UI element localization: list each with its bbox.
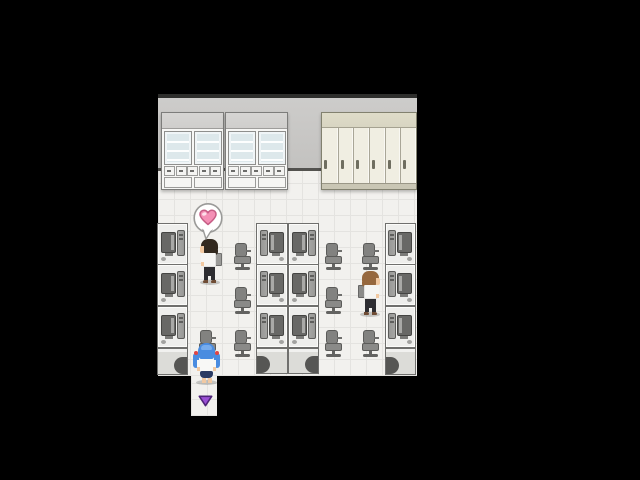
cabinet-glass-door <box>228 131 256 165</box>
chair-base <box>235 267 250 270</box>
desk-front-panel <box>385 348 416 375</box>
chair-seat <box>234 256 251 264</box>
locker-handle <box>372 160 375 169</box>
tower-slot <box>390 275 394 277</box>
desk-monitor <box>269 232 284 253</box>
monitor-screen <box>302 235 305 250</box>
chair-armrest <box>374 250 379 252</box>
tower-slot <box>179 279 183 281</box>
computer-desk <box>288 223 319 265</box>
pants <box>204 267 215 276</box>
cabinet-drawer <box>228 166 239 176</box>
monitor-stand <box>400 294 408 297</box>
desk-pc-tower <box>308 230 316 256</box>
shoe <box>203 280 208 283</box>
tower-slot <box>390 234 394 236</box>
office-chair <box>362 330 380 358</box>
chair-armrest <box>337 337 342 339</box>
cabinet-drawer <box>199 166 210 176</box>
drawer-handle <box>277 170 281 172</box>
hand <box>201 262 204 266</box>
chair-base <box>326 354 341 357</box>
monitor-stand <box>296 253 304 256</box>
desk-monitor <box>397 232 412 253</box>
cabinet-top-band <box>226 113 287 129</box>
game-screen <box>0 0 640 480</box>
monitor-stand <box>165 253 173 256</box>
office-chair <box>234 243 252 271</box>
cabinet-drawer <box>240 166 251 176</box>
desk-equipment <box>386 307 415 347</box>
chair-seat <box>234 300 251 308</box>
tower-slot <box>310 279 314 281</box>
desk-pc-tower <box>260 271 268 297</box>
chair-armrest <box>246 294 251 296</box>
locker-door <box>353 128 369 183</box>
leg <box>208 378 212 383</box>
cabinet-drawer <box>176 166 187 176</box>
tower-slot <box>179 321 183 323</box>
tower-slot <box>179 234 183 236</box>
hair-sheen <box>201 345 212 350</box>
monitor-screen <box>399 318 402 333</box>
monitor-stand <box>296 336 304 339</box>
hand <box>197 367 200 371</box>
locker-handle <box>403 160 406 169</box>
locker-top-band <box>322 113 416 128</box>
locker-cabinet <box>321 112 417 190</box>
monitor-stand <box>272 294 280 297</box>
shirt <box>199 359 214 371</box>
office-chair <box>325 330 343 358</box>
chair-base <box>326 311 341 314</box>
npc-brown-hair[interactable] <box>358 271 382 317</box>
drawer-handle <box>231 170 235 172</box>
locker-base <box>322 183 416 189</box>
drawer-handle <box>167 170 171 172</box>
desk-pc-tower <box>177 271 185 297</box>
desk-equipment <box>257 224 287 264</box>
monitor-screen <box>399 276 402 291</box>
chair-armrest <box>337 294 342 296</box>
desk-equipment <box>158 224 187 264</box>
leg <box>202 378 206 383</box>
tower-slot <box>390 238 394 240</box>
desk-equipment <box>158 265 187 305</box>
exit-arrow[interactable] <box>198 395 213 407</box>
drawer-handle <box>266 170 270 172</box>
monitor-screen <box>271 276 274 291</box>
shadow <box>360 312 380 317</box>
cabinet-door <box>228 177 256 188</box>
monitor-stand <box>400 253 408 256</box>
monitor-stand <box>272 336 280 339</box>
computer-desk <box>157 306 188 348</box>
desk-equipment <box>289 224 318 264</box>
desk-pc-tower <box>260 313 268 339</box>
cabinet-door <box>258 177 286 188</box>
sleeve <box>201 254 205 262</box>
hair-ribbon <box>215 351 219 355</box>
tower-slot <box>310 238 314 240</box>
computer-desk <box>385 223 416 265</box>
tower-slot <box>262 321 266 323</box>
player-blue-hair[interactable] <box>193 343 220 385</box>
desk-front-arch <box>174 357 187 374</box>
chair-base <box>326 267 341 270</box>
monitor-stand <box>296 294 304 297</box>
tower-slot <box>179 317 183 319</box>
desk-mouse <box>279 257 284 261</box>
desk-pc-tower <box>177 230 185 256</box>
locker-door <box>400 128 416 183</box>
chair-seat <box>325 343 342 351</box>
heart-speech-bubble <box>193 203 224 241</box>
monitor-stand <box>400 336 408 339</box>
desk-monitor <box>161 273 176 294</box>
desk-pc-tower <box>388 271 396 297</box>
shoe <box>364 312 369 315</box>
desk-front-arch <box>305 356 318 373</box>
tower-slot <box>262 279 266 281</box>
computer-desk <box>157 223 188 265</box>
desk-front-panel <box>288 348 319 374</box>
desk-front-panel <box>256 348 288 374</box>
monitor-stand <box>272 253 280 256</box>
tower-slot <box>179 275 183 277</box>
tower-slot <box>390 279 394 281</box>
desk-mouse <box>292 340 297 344</box>
computer-desk <box>157 264 188 306</box>
chair-base <box>235 354 250 357</box>
desk-monitor <box>269 273 284 294</box>
locker-handle <box>324 160 327 169</box>
tower-slot <box>262 234 266 236</box>
desk-pc-tower <box>388 230 396 256</box>
tower-slot <box>310 234 314 236</box>
monitor-screen <box>171 318 174 333</box>
cabinet-glass-door <box>258 131 286 165</box>
locker-handle <box>356 160 359 169</box>
shoe <box>211 280 216 283</box>
desk-equipment <box>289 307 318 347</box>
desk-pc-tower <box>308 313 316 339</box>
desk-monitor <box>269 315 284 336</box>
glass-cabinet <box>161 112 224 190</box>
desk-monitor <box>292 315 307 336</box>
hand <box>376 294 379 298</box>
chair-armrest <box>211 337 216 339</box>
glass-cabinet <box>225 112 288 190</box>
desk-mouse <box>292 298 297 302</box>
desk-equipment <box>257 265 287 305</box>
face <box>200 246 204 253</box>
cabinet-top-band <box>162 113 223 129</box>
desk-pc-tower <box>177 313 185 339</box>
computer-desk <box>385 306 416 348</box>
tower-slot <box>310 321 314 323</box>
tower-slot <box>390 317 394 319</box>
chair-seat <box>362 343 379 351</box>
bloomers <box>200 371 213 378</box>
chair-armrest <box>246 250 251 252</box>
chair-seat <box>362 256 379 264</box>
desk-equipment <box>158 307 187 347</box>
sleeve <box>197 360 200 367</box>
drawer-handle <box>243 170 247 172</box>
desk-monitor <box>161 315 176 336</box>
tower-slot <box>310 317 314 319</box>
tower-slot <box>262 317 266 319</box>
monitor-screen <box>302 318 305 333</box>
desk-mouse <box>407 298 412 302</box>
chair-seat <box>234 343 251 351</box>
desk-monitor <box>397 273 412 294</box>
desk-equipment <box>257 307 287 347</box>
desk-monitor <box>397 315 412 336</box>
drawer-handle <box>213 170 217 172</box>
cabinet-drawer <box>210 166 221 176</box>
desk-mouse <box>279 298 284 302</box>
cabinet-drawer <box>274 166 285 176</box>
desk-mouse <box>292 257 297 261</box>
cabinet-glass-door <box>164 131 192 165</box>
sprite <box>198 239 222 285</box>
office-chair <box>325 243 343 271</box>
office-chair <box>325 287 343 315</box>
desk-monitor <box>161 232 176 253</box>
sprite <box>358 271 382 317</box>
office-chair <box>234 330 252 358</box>
chair-seat <box>325 300 342 308</box>
cabinet-door <box>164 177 192 188</box>
computer-desk <box>288 306 319 348</box>
desk-monitor <box>292 232 307 253</box>
monitor-screen <box>171 235 174 250</box>
cabinet-drawer <box>187 166 198 176</box>
office-chair <box>362 243 380 271</box>
drawer-handle <box>190 170 194 172</box>
cabinet-glass-door <box>194 131 222 165</box>
computer-desk <box>256 306 288 348</box>
cabinet-door <box>194 177 222 188</box>
computer-desk <box>256 223 288 265</box>
desk-mouse <box>407 340 412 344</box>
monitor-screen <box>302 276 305 291</box>
cabinet-drawer <box>251 166 262 176</box>
npc-dark-hair[interactable] <box>198 239 222 285</box>
pants <box>365 299 376 308</box>
chair-base <box>363 267 378 270</box>
chair-seat <box>325 256 342 264</box>
computer-desk <box>256 264 288 306</box>
drawer-handle <box>179 170 183 172</box>
desk-pc-tower <box>388 313 396 339</box>
desk-mouse <box>407 257 412 261</box>
tower-slot <box>262 238 266 240</box>
chair-base <box>363 354 378 357</box>
desk-front-arch <box>257 356 270 373</box>
desk-pc-tower <box>308 271 316 297</box>
cabinet-drawer <box>164 166 175 176</box>
monitor-stand <box>165 336 173 339</box>
tower-slot <box>262 275 266 277</box>
drawer-handle <box>202 170 206 172</box>
hand <box>213 367 216 371</box>
chair-armrest <box>374 337 379 339</box>
monitor-screen <box>271 235 274 250</box>
monitor-screen <box>271 318 274 333</box>
computer-desk <box>385 264 416 306</box>
desk-mouse <box>161 298 166 302</box>
cabinet-drawer <box>263 166 274 176</box>
tower-slot <box>310 275 314 277</box>
sleeve <box>213 360 216 367</box>
desk-pc-tower <box>260 230 268 256</box>
desk-mouse <box>161 340 166 344</box>
chair-base <box>235 311 250 314</box>
down-arrow-icon <box>198 395 213 407</box>
tower-slot <box>390 321 394 323</box>
monitor-screen <box>171 276 174 291</box>
desk-front-arch <box>386 357 399 374</box>
desk-front-panel <box>157 348 188 375</box>
desk-mouse <box>161 257 166 261</box>
desk-monitor <box>292 273 307 294</box>
drawer-handle <box>254 170 258 172</box>
locker-door <box>369 128 385 183</box>
desk-equipment <box>289 265 318 305</box>
heart-icon <box>193 203 224 241</box>
shoe <box>372 312 377 315</box>
locker-handle <box>388 160 391 169</box>
locker-door <box>338 128 353 183</box>
computer-desk <box>288 264 319 306</box>
sleeve <box>375 286 379 294</box>
chair-armrest <box>246 337 251 339</box>
locker-handle <box>341 160 344 169</box>
tower-slot <box>179 238 183 240</box>
desk-equipment <box>386 224 415 264</box>
monitor-stand <box>165 294 173 297</box>
locker-door <box>322 128 338 183</box>
face <box>376 278 380 285</box>
monitor-screen <box>399 235 402 250</box>
chair-armrest <box>337 250 342 252</box>
shadow <box>196 380 217 385</box>
locker-door <box>385 128 400 183</box>
office-chair <box>234 287 252 315</box>
desk-equipment <box>386 265 415 305</box>
desk-mouse <box>279 340 284 344</box>
